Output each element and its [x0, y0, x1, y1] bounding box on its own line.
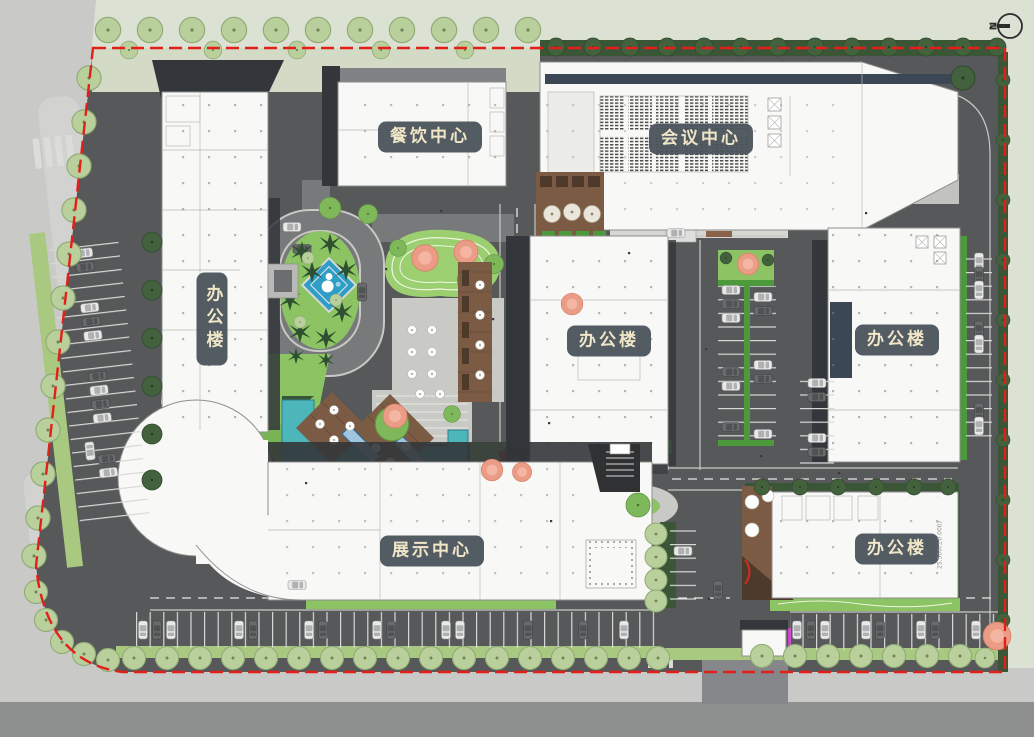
deck-strip	[458, 262, 492, 402]
planter-box	[268, 264, 298, 298]
site-plan-canvas: N 餐饮中心 会议中心 办公楼 办公楼 办公楼 展示中心 办公楼 25.500(…	[0, 0, 1034, 737]
south-entrance-drive	[702, 660, 788, 704]
site-plan-svg: N	[0, 0, 1034, 737]
building-office-center	[506, 236, 676, 474]
building-dining-center	[322, 66, 506, 186]
building-office-east	[812, 228, 960, 462]
conference-deck	[536, 172, 606, 238]
north-letter: N	[987, 22, 998, 30]
building-office-southeast	[742, 486, 958, 600]
